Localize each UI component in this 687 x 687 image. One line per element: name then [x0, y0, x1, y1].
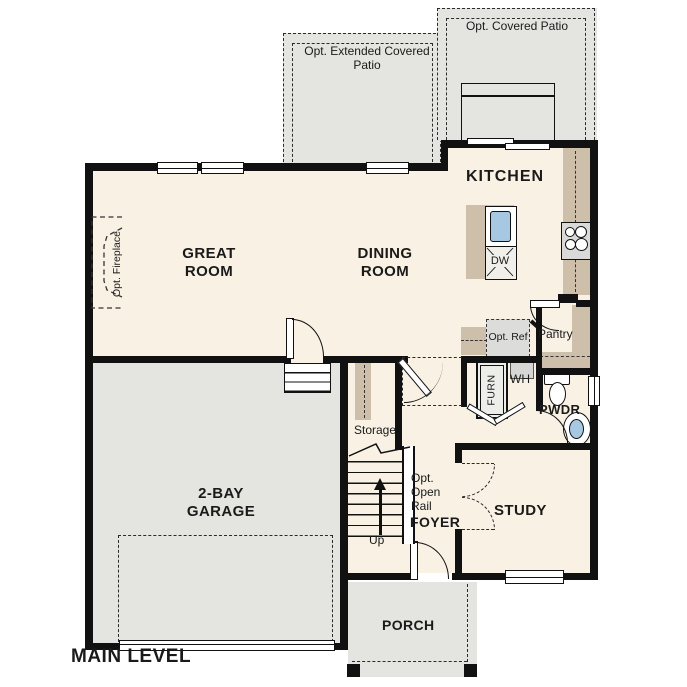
stair-arrow-shaft: [379, 489, 382, 535]
pantry-shelf-dashline: [540, 356, 590, 357]
opt-fireplace-label: Opt. Fireplace: [111, 218, 123, 310]
up-label: Up: [369, 534, 384, 548]
foyer-label: FOYER: [410, 514, 460, 531]
pwdr-sink-basin: [569, 419, 584, 439]
covered-patio-label: Opt. Covered Patio: [437, 20, 597, 34]
wall-right: [590, 140, 598, 580]
opt-open-rail-label: Opt. Open Rail: [411, 472, 455, 513]
garage-label: 2-BAY GARAGE: [171, 485, 271, 521]
wall-study-top: [455, 443, 598, 450]
stair-arrow-head: [374, 478, 386, 490]
island-sink: [485, 206, 517, 249]
coat-rod-dashline: [364, 365, 365, 418]
storage-label: Storage: [350, 424, 400, 438]
ref-cabinet: [461, 327, 487, 355]
wh-label: WH: [505, 373, 535, 387]
study-door-leaf-bottom: [462, 529, 494, 530]
furnace-label: FURN: [486, 374, 498, 405]
study-window: [505, 570, 564, 584]
burner: [575, 238, 588, 251]
wall-counter-end: [558, 294, 578, 303]
wall-front-foyer: [348, 573, 412, 580]
garage-door-clearance: [118, 535, 333, 642]
coat-closet-shelf: [355, 363, 371, 420]
pantry-shelf-right: [572, 305, 590, 352]
patio-structure-line: [462, 95, 554, 97]
patio-structure: [461, 83, 555, 144]
porch-label: PORCH: [382, 617, 435, 634]
dining-window: [366, 162, 409, 174]
study-door-leaf-top: [462, 463, 494, 464]
dishwasher-label-text: DW: [490, 255, 510, 267]
opt-ref-box: Opt. Ref: [486, 319, 530, 357]
garage-entry-opening: [291, 356, 323, 363]
burner: [575, 226, 587, 238]
porch-post-right: [464, 664, 477, 677]
dishwasher-label: DW: [485, 255, 515, 267]
burner: [565, 227, 575, 237]
great-room-label: GREAT ROOM: [169, 245, 249, 281]
garage-steps: [284, 363, 331, 393]
study-label: STUDY: [494, 502, 547, 520]
floor-plan: Opt. Ref FURN: [0, 0, 687, 687]
patio-slider-panel-2: [505, 143, 550, 150]
kitchen-label: KITCHEN: [462, 167, 548, 186]
opt-ref-label: Opt. Ref: [488, 331, 527, 344]
great-room-window-1: [157, 162, 198, 174]
pwdr-label: PWDR: [539, 402, 580, 418]
wall-mid-horiz: [461, 356, 540, 363]
sink-basin: [490, 211, 511, 242]
wall-garage-right: [340, 356, 348, 650]
wall-left: [85, 163, 93, 650]
extended-patio-label: Opt. Extended Covered Patio: [302, 45, 432, 73]
dining-room-label: DINING ROOM: [345, 245, 425, 281]
wall-pantry-bottom: [536, 368, 598, 375]
wall-pantry-top: [576, 300, 598, 307]
garage-door-panel-line: [120, 644, 334, 645]
porch-post-left: [347, 664, 360, 677]
pantry-label: Pantry: [538, 328, 573, 342]
plan-title: MAIN LEVEL: [71, 646, 191, 669]
furnace-inner-frame: FURN: [480, 365, 504, 415]
wall-patio-connector: [441, 140, 448, 171]
great-room-window-2: [201, 162, 244, 174]
staircase-treads: [348, 452, 402, 542]
porch-edge-dashed-bottom: [352, 661, 467, 662]
ref-cabinet-dashline: [461, 340, 487, 341]
pwdr-window: [588, 376, 600, 406]
porch-edge-dashed-right: [467, 584, 468, 662]
pantry-shelf-bottom: [540, 352, 590, 368]
cooktop: [561, 222, 592, 260]
